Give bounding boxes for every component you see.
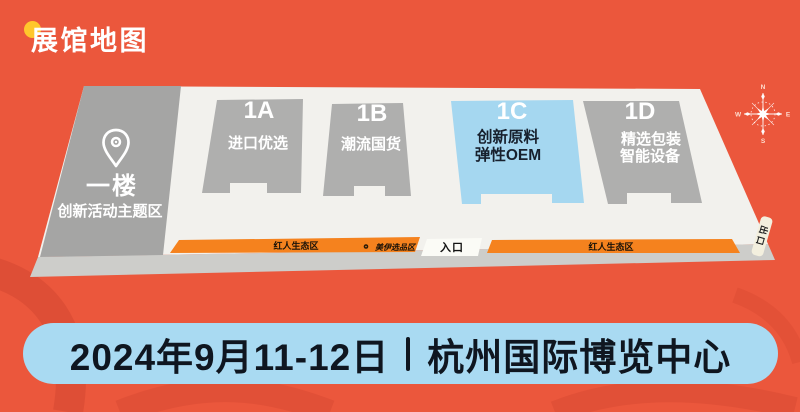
hall-1a-description: 进口优选 bbox=[228, 134, 288, 152]
hall-1d-description-line2: 智能设备 bbox=[620, 147, 681, 165]
zone-right-label: 红人生态区 bbox=[588, 241, 633, 252]
hall-1c-label: 1C bbox=[497, 98, 528, 125]
compass-n: N bbox=[761, 84, 766, 91]
zone-brand-icon bbox=[364, 244, 369, 249]
hall-1c-description-line2: 弹性OEM bbox=[475, 145, 541, 164]
hall-1d-label: 1D bbox=[625, 98, 656, 125]
swirl-decoration bbox=[555, 391, 795, 412]
zone-brand-label: 美伊选品区 bbox=[375, 243, 417, 252]
hall-1c-description-line1: 创新原料 bbox=[476, 127, 540, 146]
compass-w: W bbox=[735, 112, 742, 119]
hall-1a-label: 1A bbox=[244, 97, 275, 124]
compass-e: E bbox=[786, 112, 791, 119]
zone-left-label: 红人生态区 bbox=[273, 240, 318, 251]
swirl-decoration bbox=[120, 390, 330, 412]
event-date: 2024年9月11-12日 bbox=[70, 327, 389, 381]
floor-sublabel: 创新活动主题区 bbox=[56, 202, 162, 220]
page-title: 展馆地图 bbox=[31, 27, 149, 57]
poster: 展馆地图 一楼 创新活动主题区 1A 进口优选 1B 潮流国货 1C 创新原料 … bbox=[0, 0, 800, 412]
floor-label: 一楼 bbox=[86, 173, 138, 200]
event-banner: 2024年9月11-12日 杭州国际博览中心 bbox=[23, 323, 778, 384]
compass-icon: N E S W bbox=[735, 84, 791, 145]
hall-1b-label: 1B bbox=[357, 100, 388, 127]
divider bbox=[406, 337, 410, 371]
hall-1b-description: 潮流国货 bbox=[341, 135, 401, 153]
hall-1d-description-line1: 精选包装 bbox=[621, 130, 682, 148]
venue-name: 杭州国际博览中心 bbox=[427, 327, 731, 381]
compass-s: S bbox=[761, 138, 766, 145]
entrance-label: 入口 bbox=[440, 241, 464, 254]
